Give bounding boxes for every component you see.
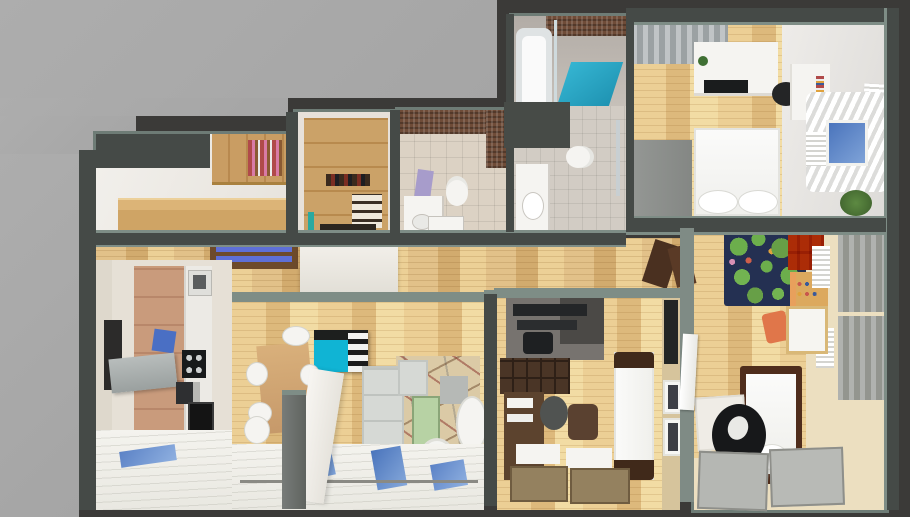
living-sofa-chaise [398, 360, 428, 396]
backdrop-step-4 [0, 154, 79, 517]
wall-living-study [484, 290, 497, 506]
bedroom-plant-small [698, 56, 708, 66]
wc-bath-mat [414, 169, 434, 199]
kids-floor-mat-2 [769, 447, 845, 508]
bedroom-plant [840, 190, 872, 216]
living-bench [244, 416, 270, 444]
kitchen-window-floor [96, 430, 232, 510]
wall-hall-top [96, 230, 626, 247]
study-bookcase [500, 358, 570, 394]
wall-bath-bedroom [626, 16, 634, 230]
room-walk-in-closet [296, 112, 392, 238]
wall-living-top [232, 292, 484, 302]
wall-entry-closet [286, 112, 298, 238]
kids-curtain-2 [838, 316, 886, 400]
room-kids [694, 228, 886, 510]
bedroom-pillow-right [738, 190, 778, 214]
living-curtain-rod [240, 480, 478, 483]
study-sofa-cap-top [614, 352, 654, 368]
study-equipment [517, 320, 577, 330]
wall-bedroom-top [626, 8, 896, 25]
room-kitchen [96, 260, 232, 510]
kitchen-range-hood [108, 353, 177, 394]
kids-table-white [786, 306, 828, 354]
kitchen-cooktop [182, 350, 206, 378]
bedroom-doorway-wall [632, 140, 692, 218]
living-chair-1 [282, 326, 310, 346]
kitchen-coffee-machine [176, 382, 200, 404]
room-entry-hall [96, 134, 286, 238]
study-black-desk [513, 304, 587, 316]
wall-left-exterior [79, 150, 96, 510]
floorplan-render [0, 0, 910, 517]
bedroom-tv [704, 80, 748, 93]
study-window-rug-2 [570, 468, 630, 504]
closet-shoe-shelf [352, 194, 382, 228]
study-papers-1 [507, 398, 533, 408]
wall-study-top [494, 288, 680, 298]
wall-void-block [504, 102, 570, 148]
living-chair-2 [246, 362, 268, 386]
kids-curtain-1 [838, 228, 886, 312]
living-partition-end-cap [282, 390, 306, 509]
study-window-sill-2 [566, 448, 612, 468]
study-ottoman [568, 404, 598, 440]
study-window-sill-1 [516, 444, 560, 464]
wall-closet-bath [390, 110, 400, 238]
closet-teal-accent [308, 212, 314, 230]
bedroom-radiator [806, 132, 826, 166]
study-window-rug-1 [510, 466, 568, 502]
kids-floor-mat-1 [697, 451, 769, 511]
backdrop-step-2 [0, 98, 288, 116]
kitchen-cutting-board [152, 329, 177, 354]
backdrop-step-1 [0, 0, 497, 98]
wall-kids-top [626, 216, 886, 235]
wall-right-exterior [884, 8, 899, 510]
room-living [232, 302, 484, 510]
hall-sideboard [300, 246, 398, 292]
kitchen-sink-basin [193, 275, 206, 289]
room-study [497, 298, 680, 510]
tub-door-glass [616, 120, 620, 196]
tub-basin [522, 192, 544, 220]
study-equipment-chair [523, 332, 553, 354]
study-wall-tv [664, 300, 678, 364]
closet-hanging-clothes [326, 174, 370, 186]
wc-toilet [446, 180, 468, 206]
entry-dark-notch [96, 134, 210, 168]
room-master-bedroom [632, 20, 888, 218]
kids-radiator-1 [812, 246, 830, 288]
bedroom-window [826, 120, 868, 166]
study-desk-chair [540, 396, 568, 430]
tub-mosaic-band [546, 16, 628, 36]
entry-books [248, 140, 282, 176]
study-papers-2 [507, 414, 533, 422]
room-bathroom-wc [398, 110, 508, 238]
bedroom-pillow-left [698, 190, 738, 214]
tub-toilet [566, 146, 590, 168]
